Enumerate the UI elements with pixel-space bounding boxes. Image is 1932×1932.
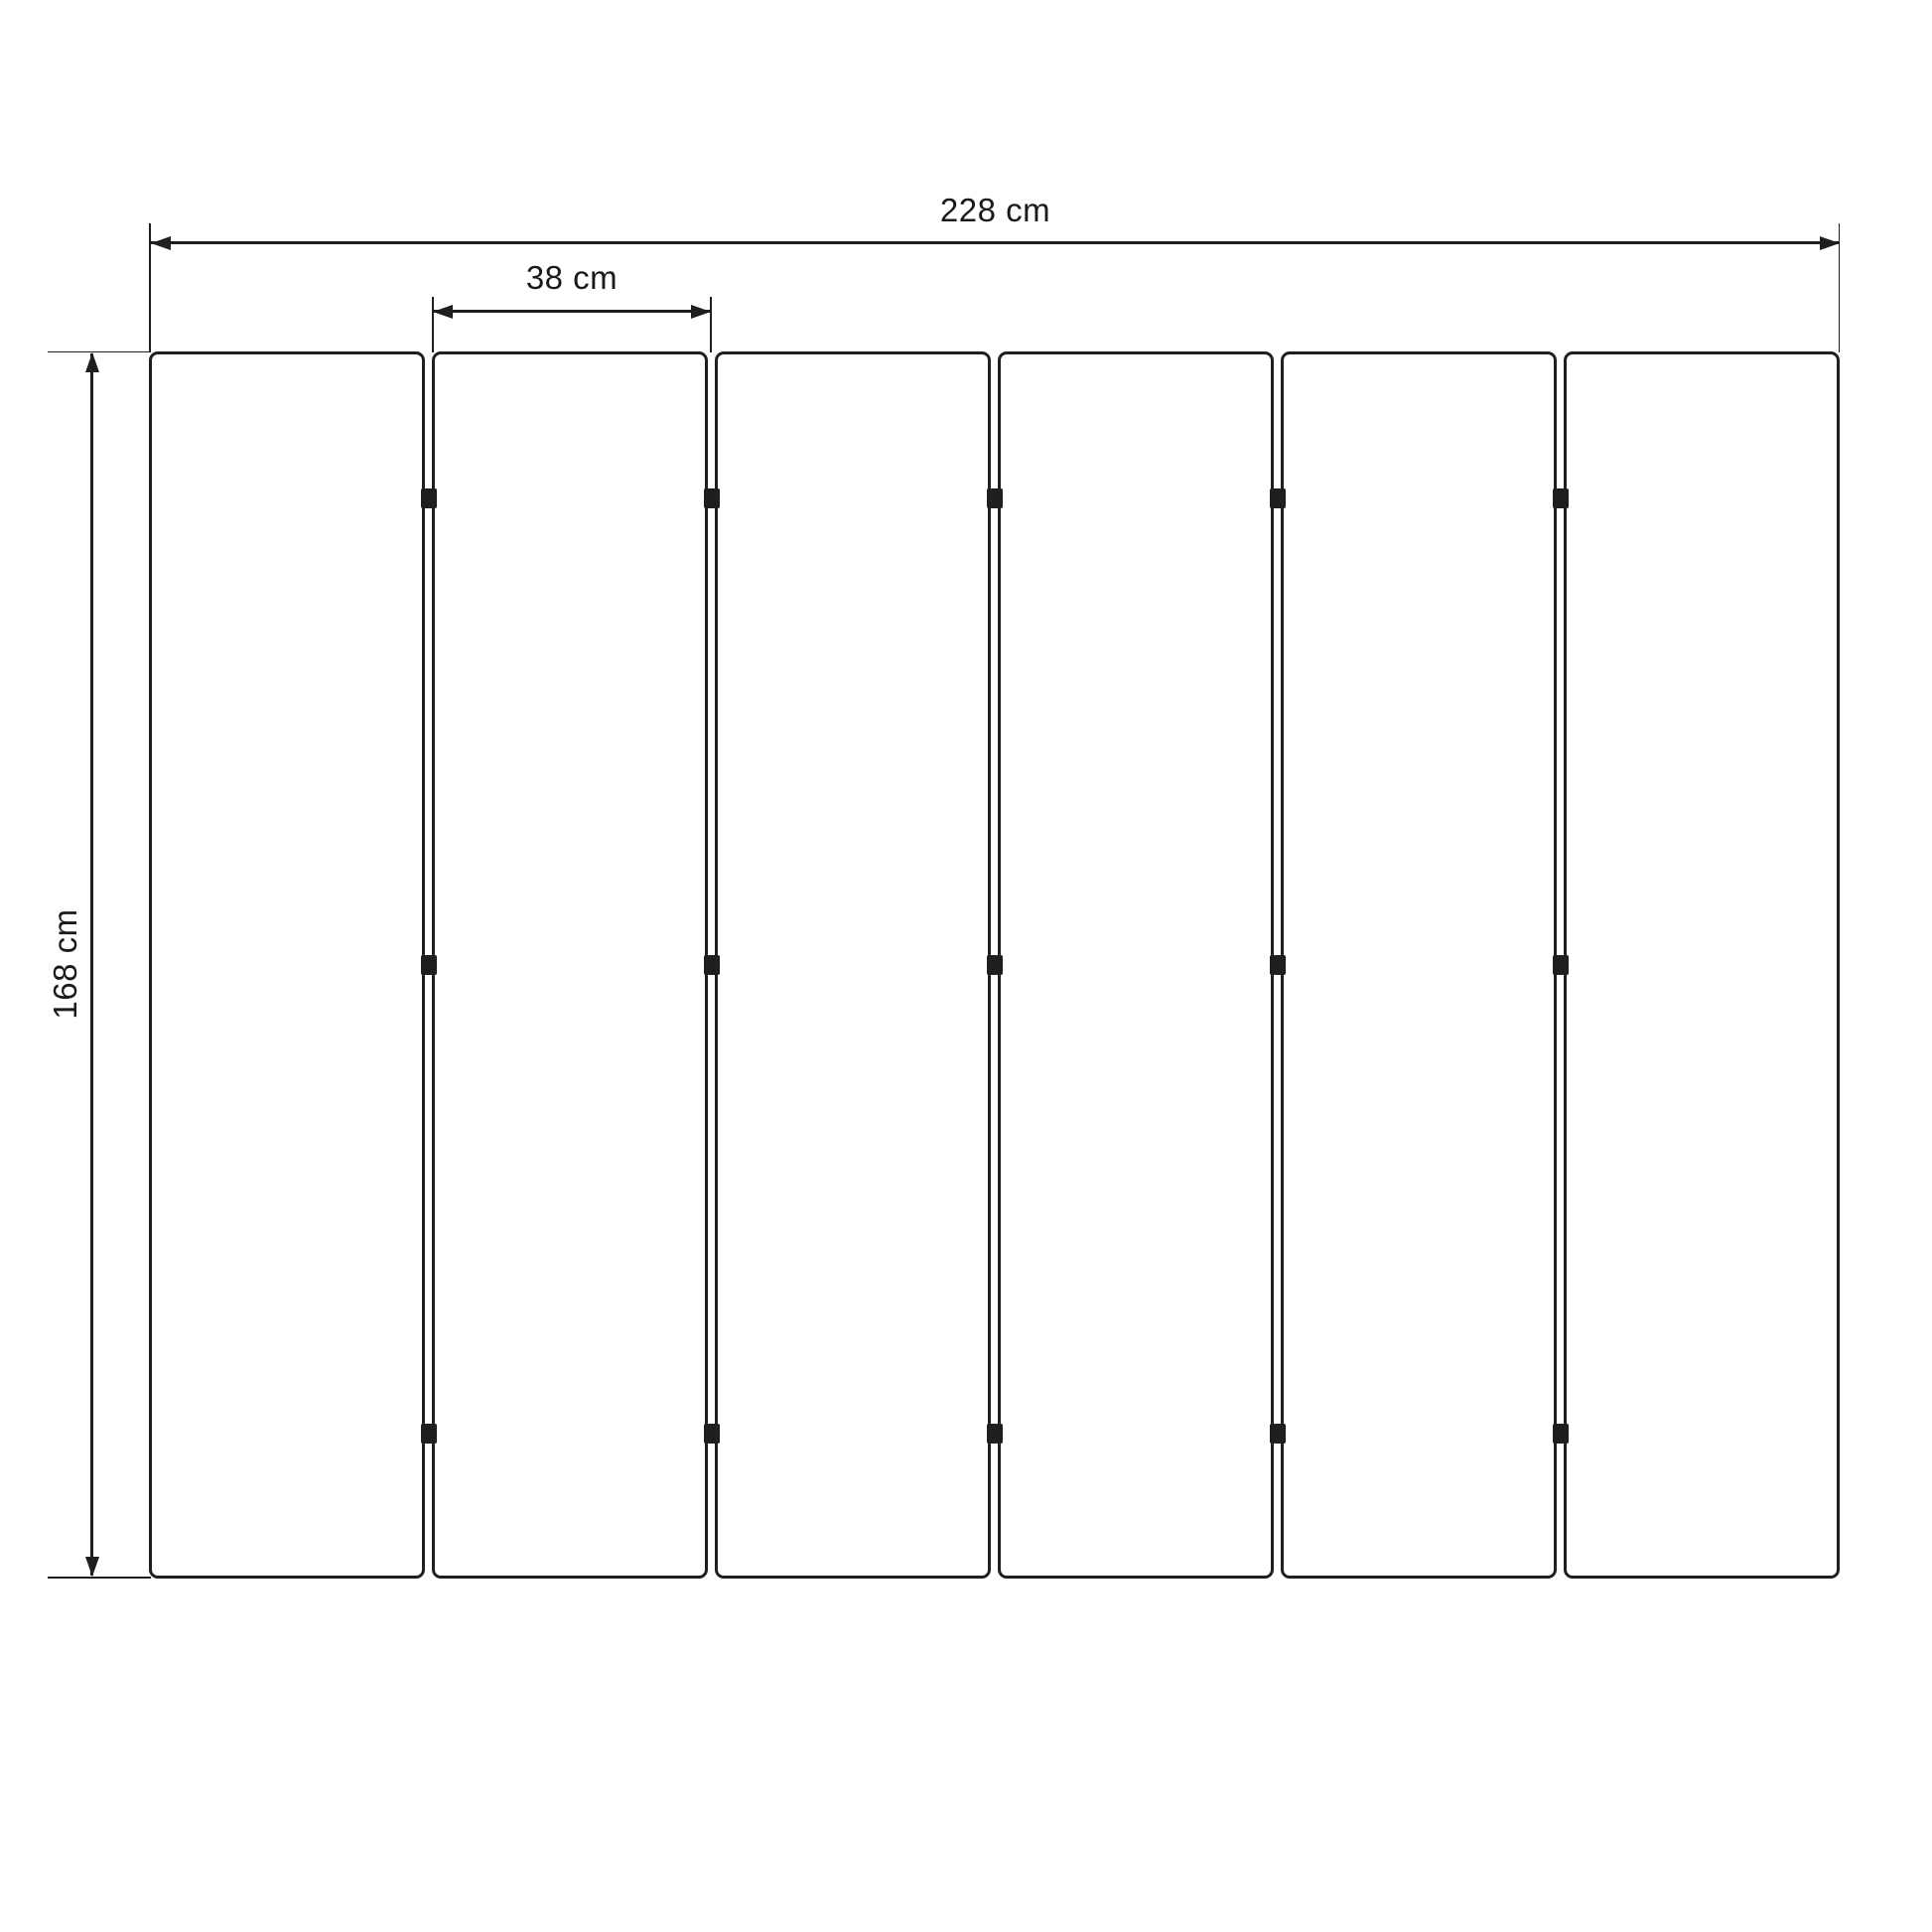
hinge-mark bbox=[704, 1424, 720, 1444]
hinge-layer bbox=[0, 0, 1932, 1932]
arrow-down-icon bbox=[85, 1557, 99, 1577]
folding-screen-dimension-drawing: 228 cm 38 cm 168 cm bbox=[0, 0, 1932, 1932]
hinge-mark bbox=[704, 955, 720, 975]
hinge-mark bbox=[421, 955, 437, 975]
dimension-label-height: 168 cm bbox=[46, 908, 85, 1019]
arrow-right-icon bbox=[691, 305, 711, 319]
hinge-mark bbox=[987, 1424, 1003, 1444]
dimension-label-total-width: 228 cm bbox=[151, 191, 1840, 230]
dimension-line-total-width bbox=[151, 241, 1840, 244]
dimension-line-height bbox=[90, 353, 93, 1576]
hinge-mark bbox=[987, 955, 1003, 975]
hinge-mark bbox=[1270, 955, 1286, 975]
hinge-mark bbox=[1553, 1424, 1569, 1444]
dimension-label-panel-width: 38 cm bbox=[433, 258, 711, 298]
arrow-left-icon bbox=[433, 305, 453, 319]
hinge-mark bbox=[1270, 1424, 1286, 1444]
arrow-right-icon bbox=[1820, 236, 1840, 250]
hinge-mark bbox=[1553, 955, 1569, 975]
extension-line-bottom bbox=[48, 1577, 151, 1579]
hinge-mark bbox=[987, 488, 1003, 508]
dimension-line-panel-width bbox=[433, 310, 711, 313]
hinge-mark bbox=[1553, 488, 1569, 508]
hinge-mark bbox=[704, 488, 720, 508]
extension-line-top bbox=[48, 351, 151, 353]
hinge-mark bbox=[421, 488, 437, 508]
hinge-mark bbox=[421, 1424, 437, 1444]
arrow-left-icon bbox=[151, 236, 171, 250]
hinge-mark bbox=[1270, 488, 1286, 508]
arrow-up-icon bbox=[85, 352, 99, 372]
